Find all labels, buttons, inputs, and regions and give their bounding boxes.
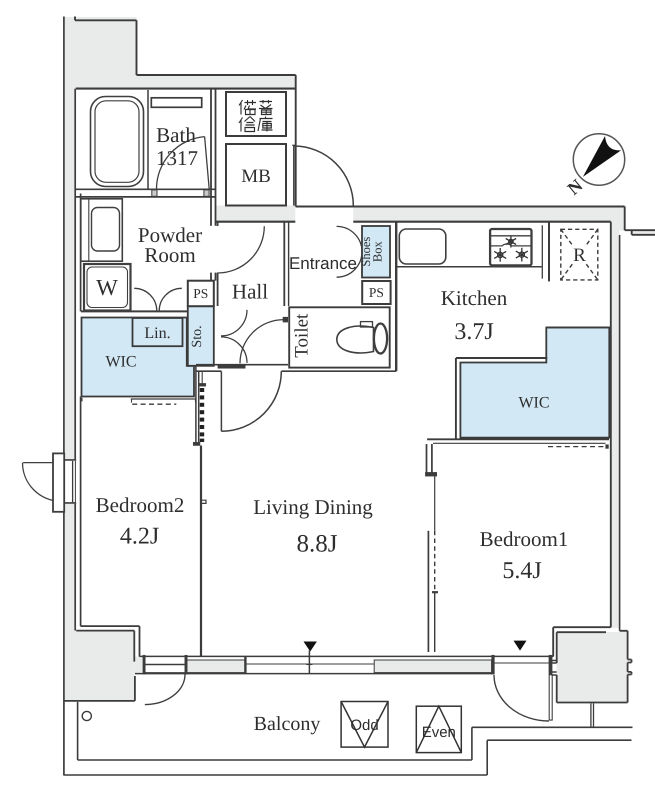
svg-text:Bath: Bath bbox=[156, 123, 196, 147]
svg-text:1317: 1317 bbox=[156, 146, 198, 170]
svg-text:5.4J: 5.4J bbox=[502, 558, 541, 584]
svg-text:R: R bbox=[573, 245, 586, 266]
svg-text:8.8J: 8.8J bbox=[297, 531, 338, 558]
svg-text:PS: PS bbox=[369, 285, 384, 300]
svg-text:Balcony: Balcony bbox=[254, 713, 321, 735]
svg-text:Bedroom2: Bedroom2 bbox=[96, 493, 185, 517]
svg-text:W: W bbox=[96, 275, 118, 300]
svg-text:Lin.: Lin. bbox=[144, 325, 170, 342]
svg-text:Box: Box bbox=[371, 241, 385, 263]
svg-text:Even: Even bbox=[422, 724, 456, 741]
svg-text:Sto.: Sto. bbox=[190, 325, 205, 347]
svg-text:WIC: WIC bbox=[105, 354, 136, 371]
svg-text:Room: Room bbox=[144, 243, 195, 267]
svg-text:3.7J: 3.7J bbox=[454, 319, 493, 345]
svg-text:Entrance: Entrance bbox=[289, 254, 357, 273]
svg-text:Hall: Hall bbox=[232, 280, 268, 304]
svg-text:4.2J: 4.2J bbox=[120, 524, 159, 550]
svg-text:Bedroom1: Bedroom1 bbox=[480, 527, 569, 551]
svg-text:Toilet: Toilet bbox=[292, 313, 313, 358]
svg-text:Living Dining: Living Dining bbox=[253, 495, 373, 519]
svg-text:PS: PS bbox=[193, 286, 208, 301]
svg-text:MB: MB bbox=[241, 166, 271, 187]
svg-text:Kitchen: Kitchen bbox=[441, 286, 508, 310]
svg-text:WIC: WIC bbox=[518, 395, 549, 412]
svg-text:Odd: Odd bbox=[350, 717, 378, 734]
